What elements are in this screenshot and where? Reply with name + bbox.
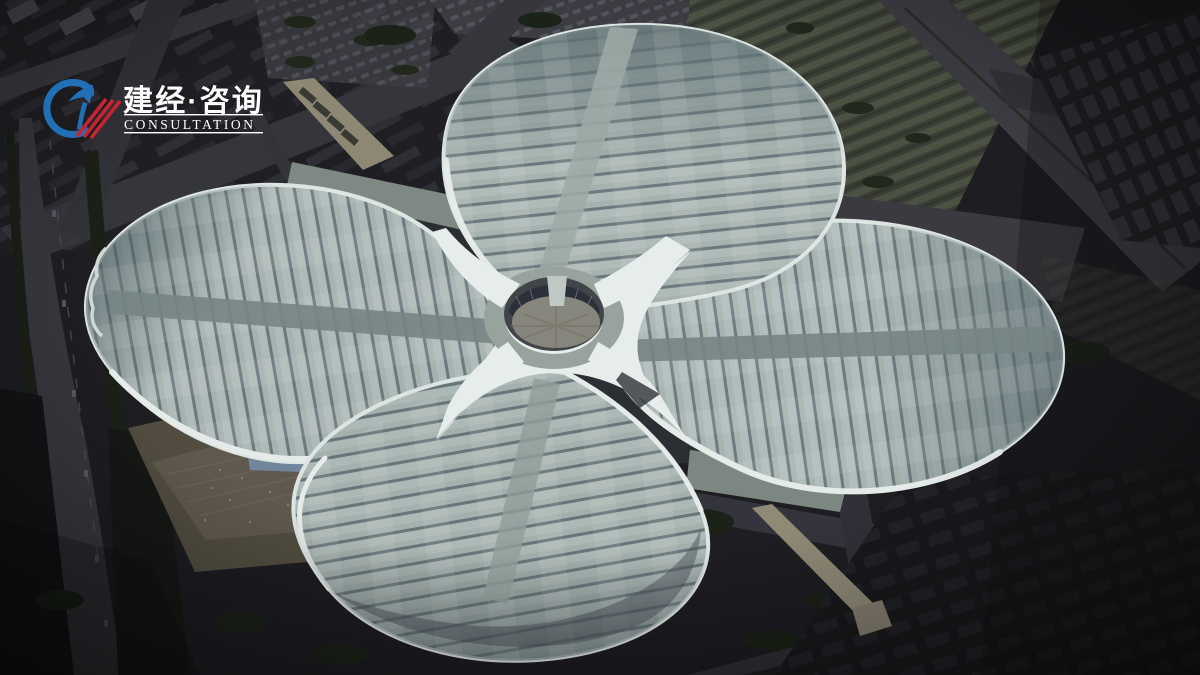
svg-text:建经·咨询: 建经·咨询 xyxy=(123,84,264,118)
svg-text:CONSULTATION: CONSULTATION xyxy=(124,117,256,132)
